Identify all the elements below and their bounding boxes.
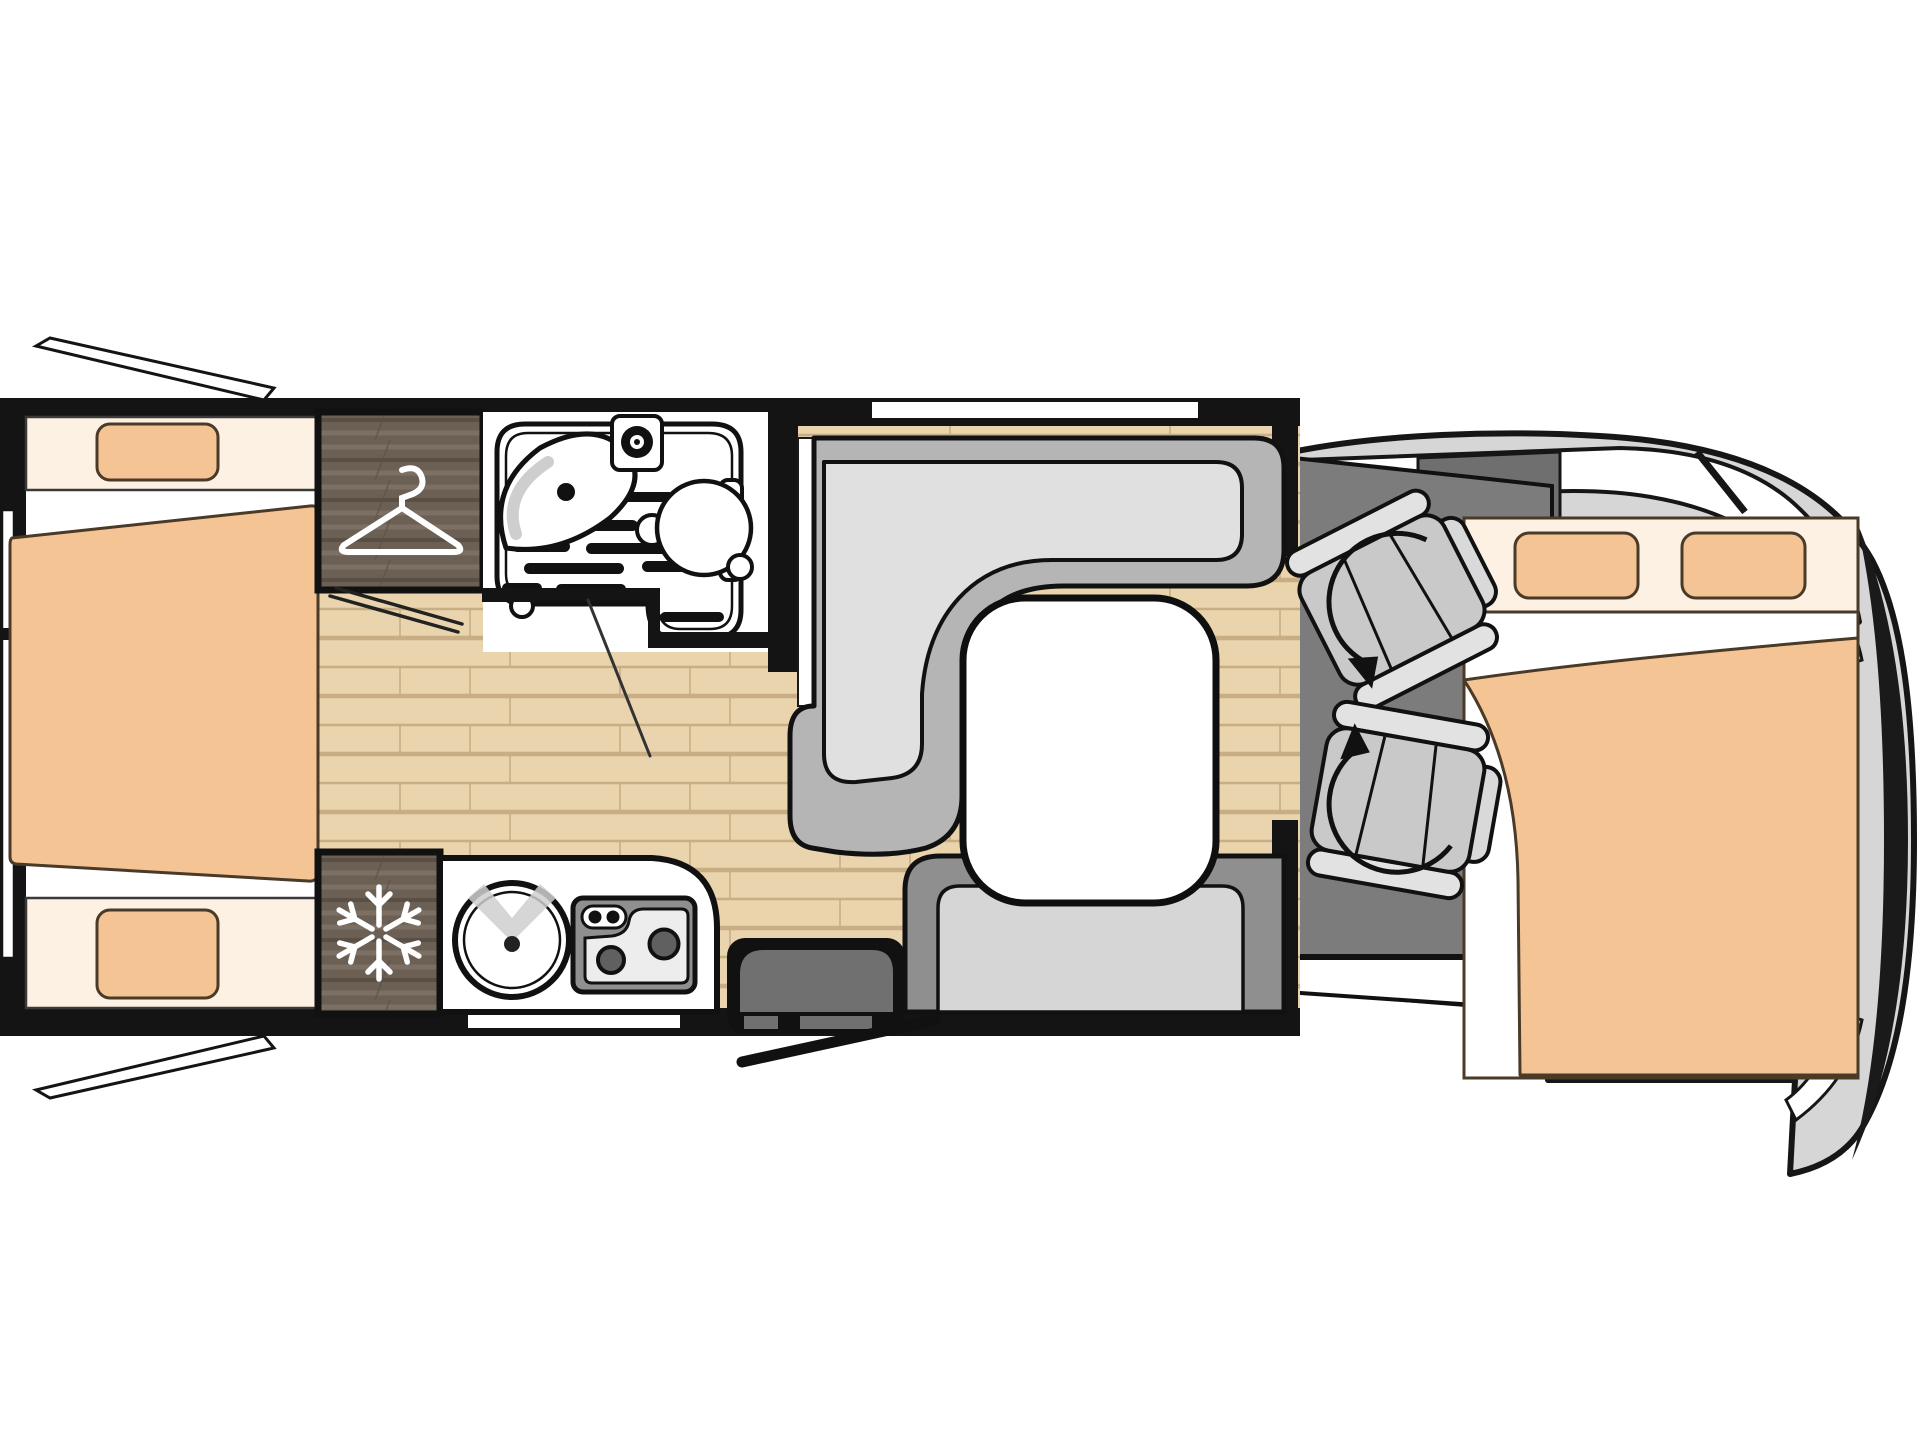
faucet-dot [634, 439, 640, 445]
hob-knob-2 [607, 911, 620, 924]
bed-duvet [10, 506, 318, 881]
toilet-flush [728, 555, 752, 579]
bed-top-pillow [97, 424, 218, 480]
entry-group [727, 938, 935, 1062]
entry-step-tab-1 [744, 1016, 778, 1029]
washbasin-plug [557, 483, 575, 501]
washroom-wall-right [768, 398, 798, 672]
awning-window-top-left [36, 338, 274, 400]
seat-base [1308, 725, 1487, 875]
wardrobe [318, 412, 483, 590]
hob-burner-large [650, 930, 679, 959]
motorhome-floorplan [0, 0, 1920, 1440]
hob-burner-small [598, 947, 624, 973]
overcab-pillow-right [1682, 533, 1805, 598]
dinette-table [963, 598, 1216, 903]
hob-group [573, 898, 695, 992]
kitchen-service-hatch [468, 1014, 680, 1028]
bed-bottom-pillow [97, 910, 218, 998]
floorplan-canvas [0, 0, 1920, 1440]
washroom-wall-step [648, 588, 660, 638]
entry-step [740, 950, 893, 1012]
hob-knob-1 [589, 911, 602, 924]
awning-window-bottom-left [36, 1036, 274, 1098]
kitchen-sink-drain [504, 936, 520, 952]
overcab-duvet [1464, 638, 1858, 1075]
refrigerator [318, 852, 440, 1014]
overcab-bed-group [1464, 518, 1858, 1078]
overcab-pillow-left [1515, 533, 1638, 598]
lounge-window [872, 402, 1198, 418]
kitchen-group [440, 858, 717, 1012]
entry-step-tab-2 [800, 1016, 872, 1029]
washroom-pivot-wall [482, 588, 656, 602]
